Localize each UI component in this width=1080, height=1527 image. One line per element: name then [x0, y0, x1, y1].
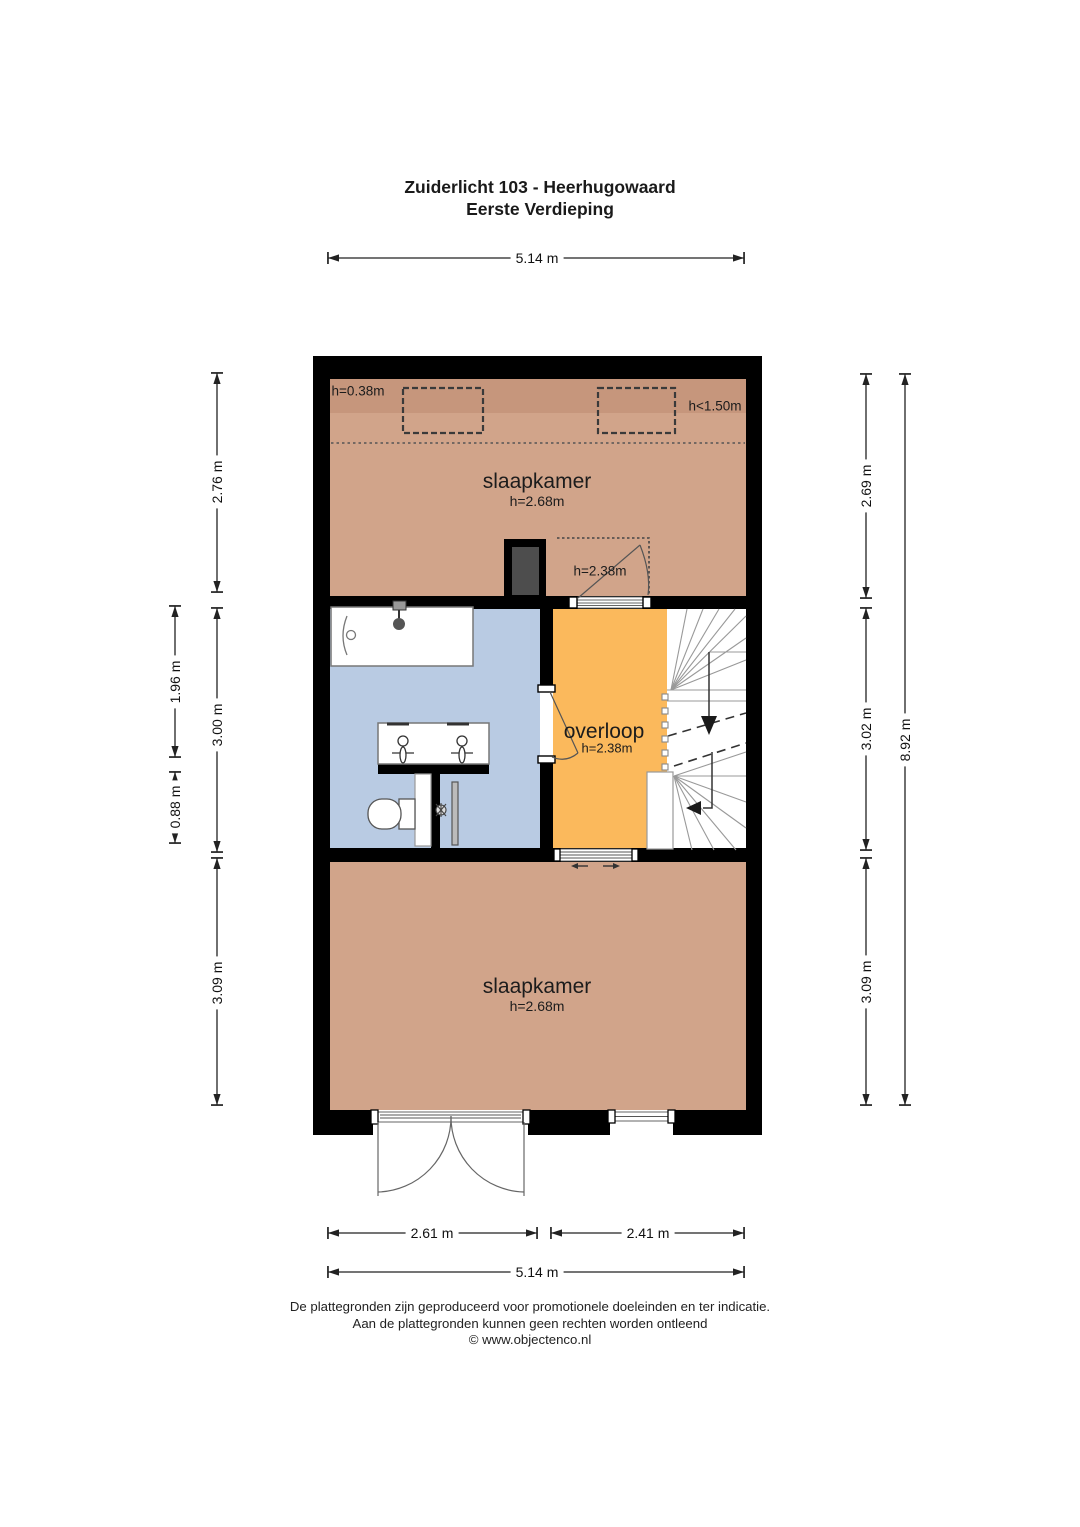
dim-right-bottom: 3.09 m [858, 956, 874, 1009]
dim-left-top: 2.76 m [209, 456, 225, 509]
floorplan-page: Zuiderlicht 103 - Heerhugowaard Eerste V… [0, 0, 1080, 1527]
floorplan-drawing [0, 0, 1080, 1527]
shower-partition [415, 774, 431, 846]
title-address: Zuiderlicht 103 - Heerhugowaard [0, 176, 1080, 198]
french-doors [371, 1110, 530, 1196]
shower-head-icon [436, 803, 446, 817]
note-low-headroom: h<1.50m [689, 399, 742, 414]
footer-line-1: De plattegronden zijn geproduceerd voor … [0, 1299, 1060, 1316]
note-knee-wall-height: h=0.38m [332, 384, 385, 399]
dim-left-middle: 3.00 m [209, 699, 225, 752]
label-bedroom-top: slaapkamer [483, 470, 592, 494]
toilet [368, 799, 415, 829]
dim-left-bottom: 3.09 m [209, 957, 225, 1010]
note-door-height: h=2.38m [574, 564, 627, 579]
label-bedroom-bottom: slaapkamer [483, 975, 592, 999]
dim-bottom-total: 5.14 m [511, 1264, 564, 1280]
page-title: Zuiderlicht 103 - Heerhugowaard Eerste V… [0, 176, 1080, 220]
label-landing-height: h=2.38m [582, 741, 633, 756]
footer-disclaimer: De plattegronden zijn geproduceerd voor … [0, 1299, 1060, 1349]
dim-bottom-window: 2.41 m [622, 1225, 675, 1241]
stair-landing [647, 772, 673, 849]
label-bedroom-top-height: h=2.68m [510, 493, 565, 509]
radiator [452, 782, 458, 845]
label-bedroom-bottom-height: h=2.68m [510, 998, 565, 1014]
dim-left-outer-toilet: 0.88 m [167, 781, 183, 834]
dim-right-total: 8.92 m [897, 714, 913, 767]
dim-right-middle: 3.02 m [858, 703, 874, 756]
dim-top-width: 5.14 m [511, 250, 564, 266]
dim-left-outer-bathroom: 1.96 m [167, 656, 183, 709]
window-bedroom-bottom [608, 1110, 675, 1135]
duct [504, 539, 546, 602]
footer-line-2: Aan de plattegronden kunnen geen rechten… [0, 1316, 1060, 1333]
double-washbasin [378, 723, 489, 764]
bathtub [331, 601, 473, 666]
dim-right-top: 2.69 m [858, 460, 874, 513]
title-floor: Eerste Verdieping [0, 198, 1080, 220]
footer-copyright: © www.objectenco.nl [0, 1332, 1060, 1349]
dim-bottom-door: 2.61 m [406, 1225, 459, 1241]
